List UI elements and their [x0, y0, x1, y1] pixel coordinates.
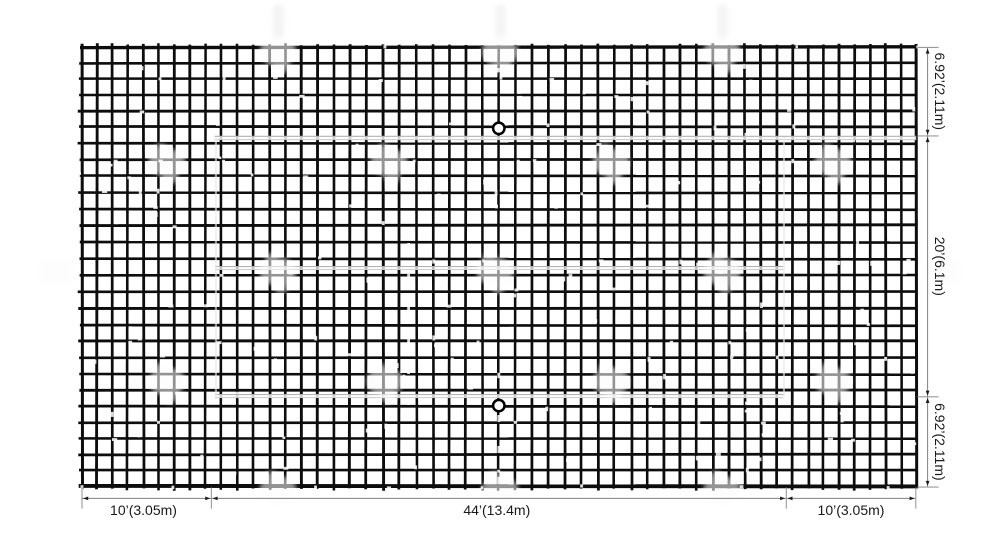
svg-text:10’(3.05m): 10’(3.05m): [818, 502, 885, 518]
svg-text:20’(6.1m): 20’(6.1m): [932, 237, 948, 296]
svg-text:6.92’(2.11m): 6.92’(2.11m): [932, 403, 948, 481]
svg-text:44’(13.4m): 44’(13.4m): [463, 502, 530, 518]
svg-text:6.92’(2.11m): 6.92’(2.11m): [932, 53, 948, 131]
svg-text:10’(3.05m): 10’(3.05m): [110, 502, 177, 518]
